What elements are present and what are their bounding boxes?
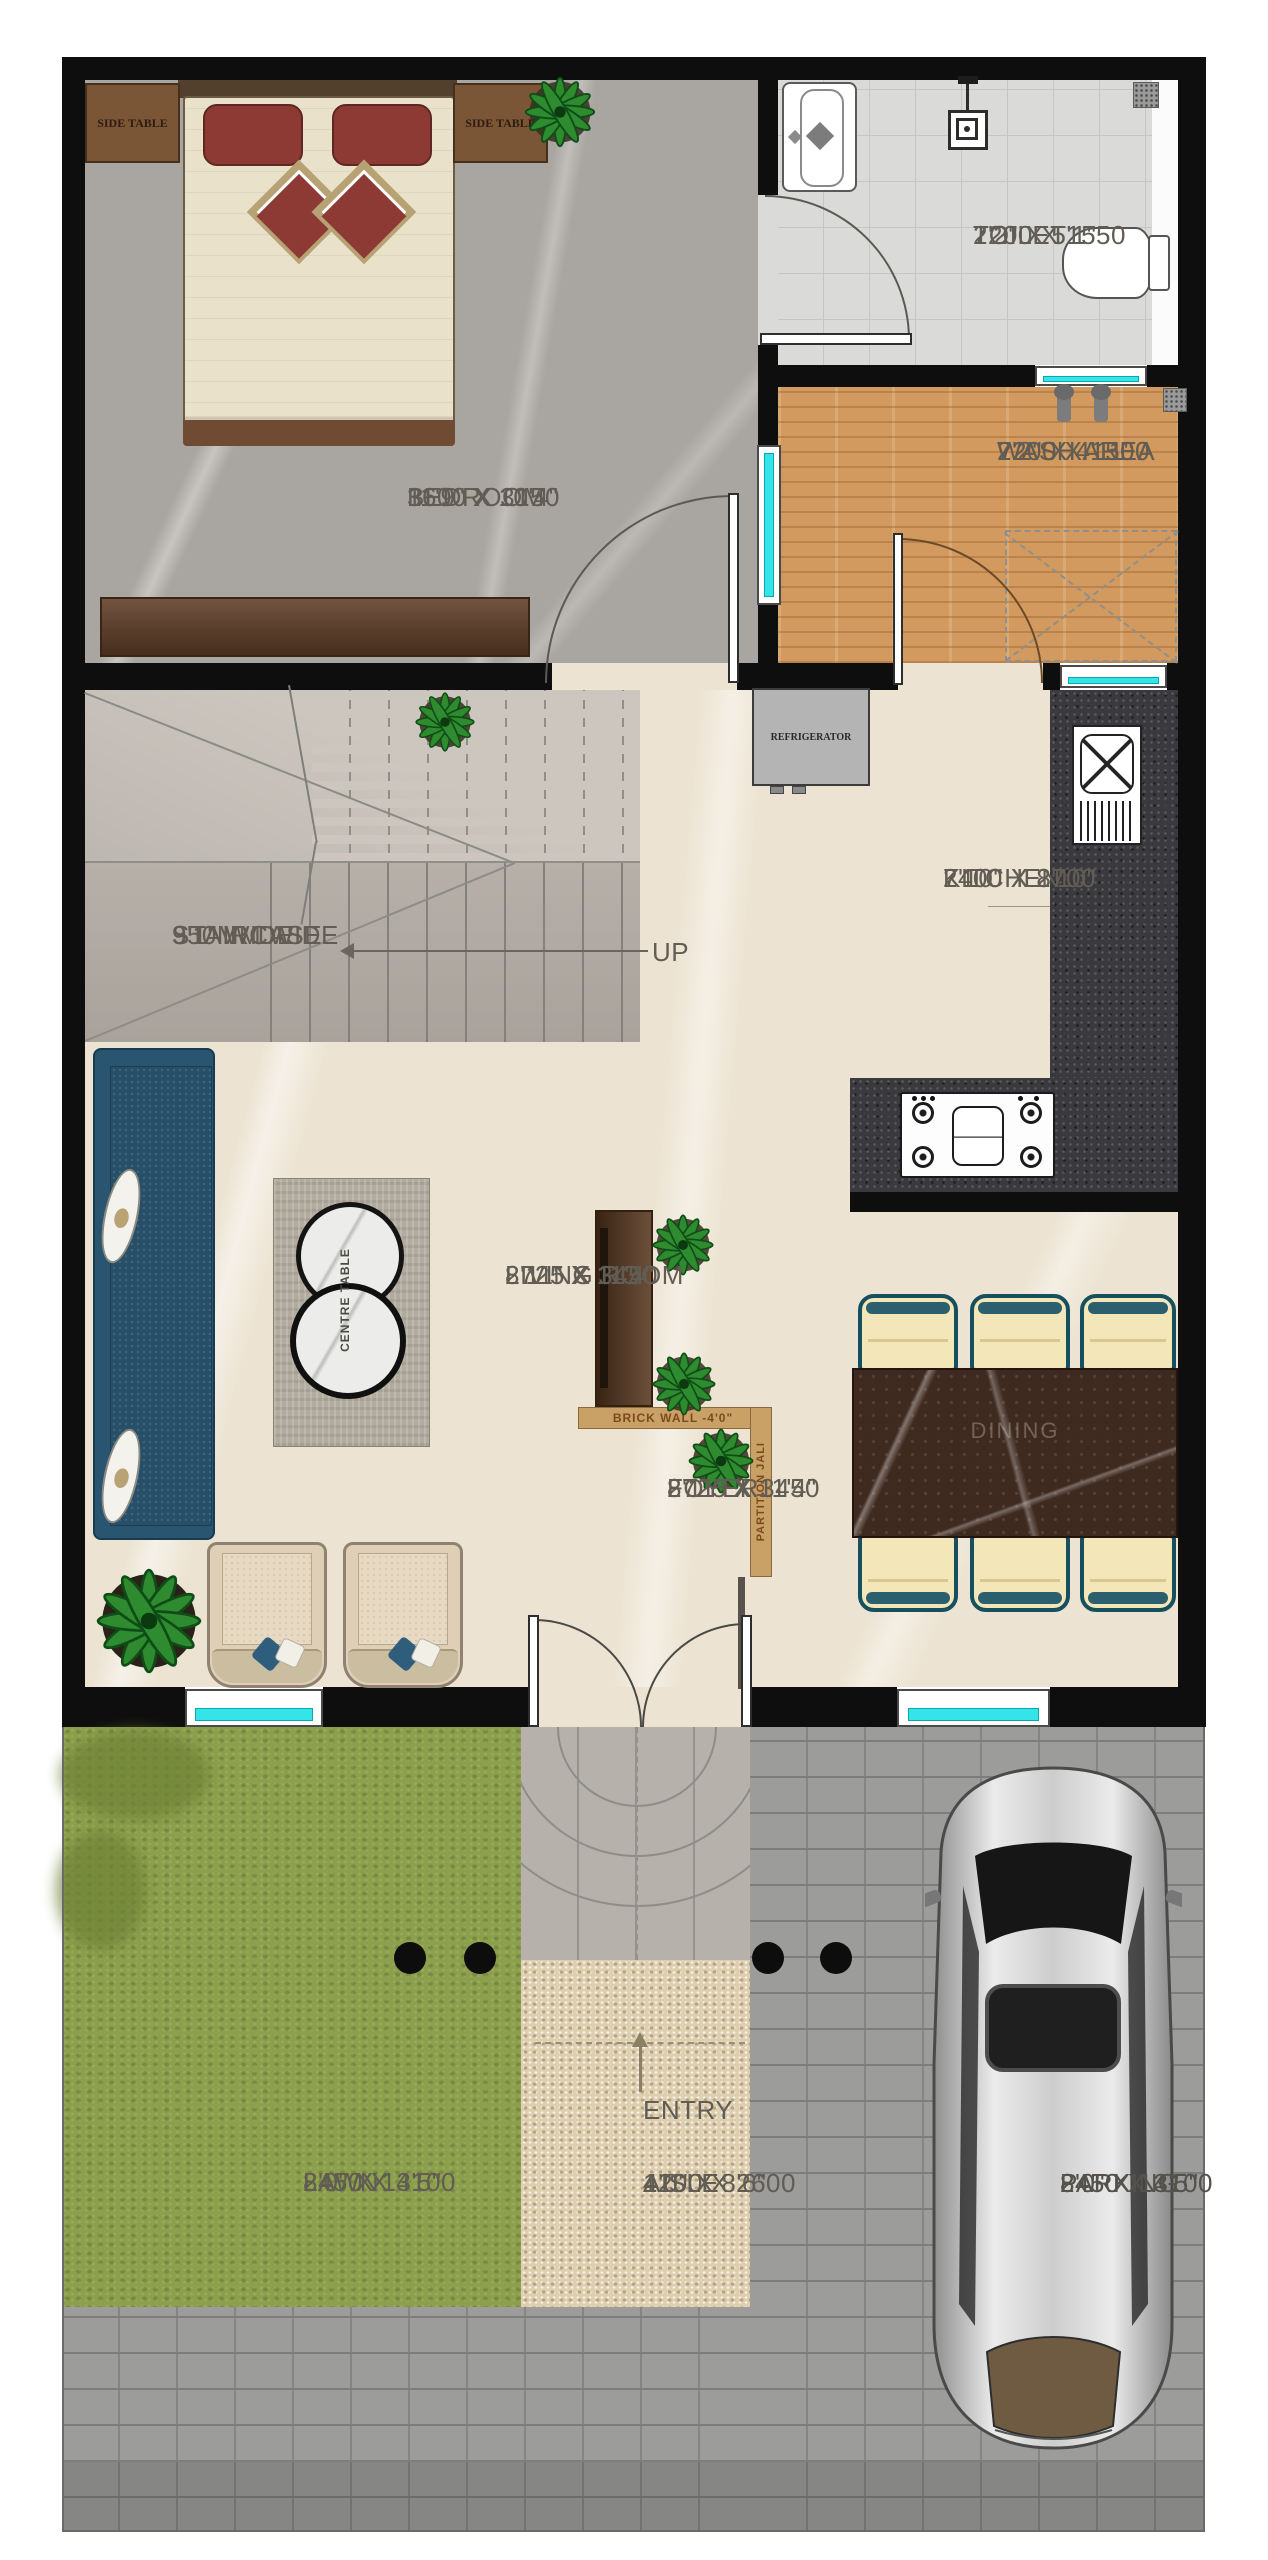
wall: [778, 365, 1035, 387]
bollard-dot: [752, 1942, 784, 1974]
room-dim-ft: 11'9" X 10'4": [407, 482, 559, 513]
room-dim-ft: 8'11" X 11'4": [667, 1473, 817, 1504]
dining-chair: [970, 1534, 1070, 1612]
chair-line: [868, 1579, 948, 1582]
dining-label: DINING: [971, 1418, 1060, 1444]
refrigerator-label: REFRIGERATOR: [771, 732, 852, 743]
wall: [1147, 365, 1178, 387]
tv-screen: [600, 1228, 608, 1388]
main-door-left: [528, 1615, 539, 1727]
pillow: [332, 104, 432, 166]
stove-knob: [921, 1096, 926, 1101]
chair-back: [866, 1592, 950, 1604]
window-glass: [908, 1708, 1039, 1721]
chair-back: [978, 1302, 1062, 1314]
chair-line: [980, 1579, 1060, 1582]
window-glass: [1068, 677, 1159, 684]
lawn-shade: [60, 1730, 210, 1820]
refrigerator: REFRIGERATOR: [752, 688, 870, 786]
window-glass: [195, 1708, 313, 1721]
pillow-center: [112, 1467, 130, 1490]
car-top-view: [925, 1764, 1182, 2452]
boundary-line: [62, 2530, 1205, 2532]
wall: [62, 57, 85, 1727]
lawn-shade: [56, 1830, 146, 1950]
burner: [1020, 1146, 1042, 1168]
chair-back: [358, 1553, 448, 1645]
wall: [323, 1687, 528, 1727]
dining-chair: [858, 1534, 958, 1612]
tap: [1094, 392, 1108, 422]
room-dim-ft: 8'0" X 13'5": [1060, 2168, 1198, 2199]
entry-arrow: [639, 2046, 642, 2092]
wall: [778, 663, 898, 690]
wall: [1178, 57, 1206, 1727]
plant-icon: [522, 74, 598, 150]
entry-steps: [521, 1727, 750, 1960]
dining-chair: [858, 1294, 958, 1372]
wall: [62, 663, 552, 690]
centre-table-label: CENTRE TABLE: [338, 1240, 358, 1360]
staircase-landing-line: [85, 861, 640, 863]
chair-line: [1090, 1339, 1166, 1342]
window: [897, 1689, 1050, 1727]
chair-line: [980, 1339, 1060, 1342]
wash-basin: [782, 82, 857, 192]
plant-icon: [650, 1350, 718, 1418]
burner: [1020, 1102, 1042, 1124]
kitchen-sink: [1072, 725, 1142, 845]
boundary-line: [62, 1727, 64, 2532]
gas-stove: [900, 1092, 1055, 1178]
wall: [1050, 1687, 1206, 1727]
wall: [737, 663, 778, 690]
up-arrow-head: [340, 943, 354, 959]
floor-drain: [1163, 388, 1187, 412]
pillow: [203, 104, 303, 166]
wall: [1043, 663, 1060, 690]
up-arrow-line: [352, 950, 648, 952]
chair-back: [1088, 1592, 1168, 1604]
room-dim-ft: 8'11" X 11'4": [505, 1260, 655, 1291]
stove-knob: [1034, 1096, 1039, 1101]
burner: [912, 1102, 934, 1124]
room-dim-ft: 7'2" X 4'11": [997, 436, 1134, 467]
tap-knob: [1091, 384, 1111, 400]
wall: [850, 1192, 1178, 1212]
kitchen-leader-line: [988, 906, 1050, 907]
room-dim-ft: 8'0" X 13'5": [303, 2167, 441, 2198]
staircase: [85, 690, 640, 1042]
floor-plan: SIDE TABLE SIDE TABLE REFRIGERATOR: [0, 0, 1268, 2560]
shower-mount: [958, 76, 978, 84]
window: [185, 1689, 323, 1727]
aisle-centerline: [636, 1727, 638, 1960]
pillow-center: [112, 1207, 130, 1230]
boundary-line: [1203, 1727, 1205, 2532]
dining-table: [852, 1368, 1178, 1538]
bed-footboard: [183, 420, 455, 446]
chair-back: [222, 1553, 312, 1645]
shower-head-center: [964, 126, 970, 132]
plant-icon: [413, 690, 477, 754]
tap: [1057, 392, 1071, 422]
entry-text: ENTRY: [643, 2095, 733, 2126]
side-table-label: SIDE TABLE: [97, 116, 168, 131]
aisle-gravel: [521, 1960, 750, 2307]
chair-back: [978, 1592, 1062, 1604]
window-glass: [764, 453, 774, 597]
sink-drainboard: [1080, 801, 1134, 841]
wall: [758, 80, 778, 195]
stove-knob: [930, 1096, 935, 1101]
wall: [752, 1687, 897, 1727]
stove-knob: [912, 1096, 917, 1101]
room-dim-ft: 7'10" X 8'10": [943, 863, 1096, 894]
bedroom-door: [728, 493, 739, 683]
room-dim-ft: 3'1" WIDE: [172, 920, 295, 951]
bollard-dot: [820, 1942, 852, 1974]
shower-arm: [966, 80, 969, 112]
paver-shade: [62, 2462, 1205, 2532]
burner: [912, 1146, 934, 1168]
dining-chair: [1080, 1294, 1176, 1372]
tap-knob: [1054, 384, 1074, 400]
wall: [758, 345, 778, 445]
dining-chair: [970, 1294, 1070, 1372]
window: [1035, 366, 1147, 386]
accent-chair: [207, 1542, 327, 1688]
chair-line: [1090, 1579, 1166, 1582]
floor-drain: [1133, 82, 1159, 108]
up-text: UP: [652, 937, 689, 968]
wall: [62, 57, 1206, 80]
toilet-wc-tank: [1148, 235, 1170, 291]
toilet-door: [760, 333, 912, 345]
entry-arrow-head: [632, 2032, 648, 2047]
toilet-ledge: [1152, 80, 1178, 365]
shower-head: [948, 110, 988, 150]
refrigerator-foot: [770, 786, 784, 794]
chair-back: [1088, 1302, 1168, 1314]
room-dim-ft: 7'2" X 5'1": [973, 220, 1097, 251]
dining-chair: [1080, 1534, 1176, 1612]
plant-icon: [94, 1566, 204, 1676]
refrigerator-foot: [792, 786, 806, 794]
wall: [1167, 663, 1178, 690]
stove-center-panel: [952, 1106, 1004, 1166]
wall: [62, 1687, 185, 1727]
chair-back: [866, 1302, 950, 1314]
room-dim-ft: 4'0" X 8'6": [643, 2168, 767, 2199]
main-door-right: [741, 1615, 752, 1727]
bollard-dot: [394, 1942, 426, 1974]
stove-knob: [1018, 1096, 1023, 1101]
accent-chair: [343, 1542, 463, 1688]
bollard-dot: [464, 1942, 496, 1974]
side-table-left: SIDE TABLE: [85, 83, 180, 163]
chair-line: [868, 1339, 948, 1342]
window-glass: [1043, 376, 1138, 382]
dresser: [100, 597, 530, 657]
sink-basin: [1080, 734, 1134, 794]
wall: [758, 605, 778, 663]
window: [1060, 665, 1167, 688]
wash-area-door: [893, 533, 903, 685]
window: [757, 445, 781, 605]
